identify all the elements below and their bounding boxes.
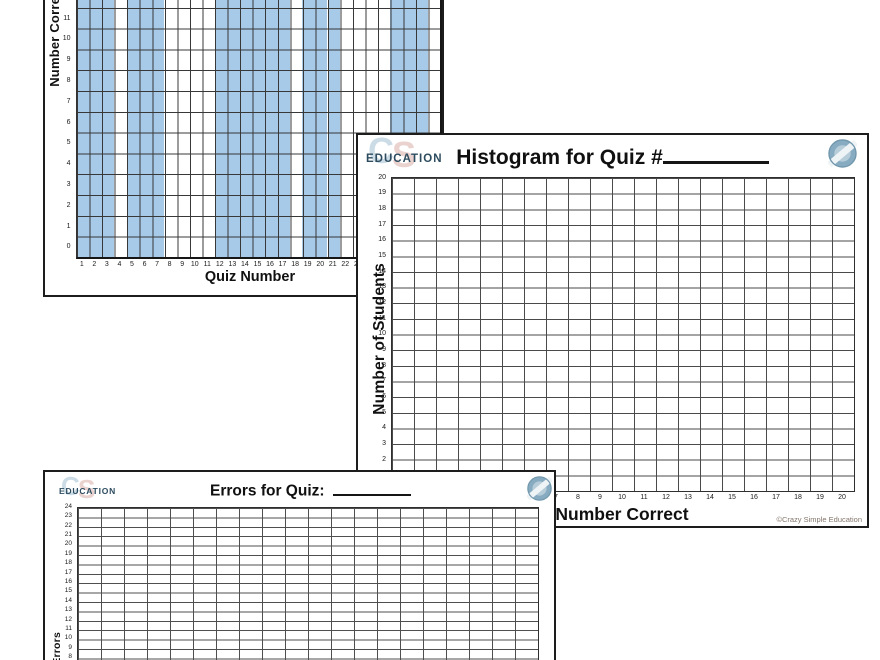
histogram-title: Histogram for Quiz # [358, 141, 867, 170]
shaded-column [277, 0, 290, 257]
shaded-column [315, 0, 328, 257]
y-tick-label: 8 [56, 654, 72, 660]
y-tick-label: 6 [55, 119, 71, 126]
grid-lines [78, 508, 538, 660]
logo-word: EDUCATION [59, 486, 116, 496]
x-tick-label: 15 [722, 494, 742, 501]
y-tick-label: 8 [370, 362, 386, 369]
x-tick-label: 13 [678, 494, 698, 501]
y-tick-label: 20 [370, 174, 386, 181]
y-tick-label: 14 [370, 268, 386, 275]
tracker-y-axis-title: Number Correct [47, 0, 62, 87]
y-tick-label: 15 [370, 252, 386, 259]
shaded-column [77, 0, 90, 257]
y-tick-label: 9 [370, 346, 386, 353]
x-tick-label: 18 [788, 494, 808, 501]
y-tick-label: 13 [370, 283, 386, 290]
shaded-column [252, 0, 265, 257]
x-tick-label: 20 [832, 494, 852, 501]
y-tick-label: 1 [55, 223, 71, 230]
errors-page: C S EDUCATION Errors for Quiz: Number of… [43, 470, 556, 660]
y-tick-label: 10 [56, 635, 72, 642]
tracker-x-axis-title: Quiz Number [100, 269, 400, 285]
y-tick-label: 9 [55, 56, 71, 63]
x-tick-label: 9 [590, 494, 610, 501]
cs-education-logo-small: C S EDUCATION [59, 474, 129, 504]
shaded-column [240, 0, 253, 257]
y-tick-label: 20 [56, 541, 72, 548]
y-tick-label: 3 [55, 181, 71, 188]
shaded-column [89, 0, 102, 257]
worksheet-preview: Number Correct Quiz Number 1110987654321… [0, 0, 880, 660]
shaded-column [215, 0, 228, 257]
y-tick-label: 4 [370, 424, 386, 431]
y-tick-label: 24 [56, 504, 72, 511]
histogram-title-text: Histogram for Quiz # [456, 146, 663, 169]
errors-title-text: Errors for Quiz: [210, 483, 325, 500]
y-tick-label: 10 [370, 330, 386, 337]
shaded-column [227, 0, 240, 257]
quiz-number-blank-line [663, 141, 769, 164]
y-tick-label: 22 [56, 523, 72, 530]
errors-title: Errors for Quiz: [210, 479, 411, 501]
x-tick-label: 17 [766, 494, 786, 501]
y-tick-label: 2 [55, 202, 71, 209]
grid-lines [392, 178, 854, 491]
y-tick-label: 17 [370, 221, 386, 228]
shaded-column [102, 0, 115, 257]
brand-stamp-icon [828, 139, 857, 168]
y-tick-label: 11 [55, 15, 71, 22]
shaded-column [328, 0, 341, 257]
y-tick-label: 3 [370, 440, 386, 447]
y-tick-label: 15 [56, 588, 72, 595]
y-tick-label: 19 [370, 189, 386, 196]
y-tick-label: 21 [56, 532, 72, 539]
x-tick-label: 8 [568, 494, 588, 501]
errors-grid [77, 507, 539, 660]
y-tick-label: 11 [370, 315, 386, 322]
y-tick-label: 7 [370, 377, 386, 384]
y-tick-label: 17 [56, 570, 72, 577]
x-tick-label: 10 [612, 494, 632, 501]
y-tick-label: 6 [370, 393, 386, 400]
y-tick-label: 4 [55, 160, 71, 167]
y-tick-label: 5 [370, 409, 386, 416]
x-tick-label: 16 [744, 494, 764, 501]
y-tick-label: 16 [370, 236, 386, 243]
y-tick-label: 14 [56, 598, 72, 605]
y-tick-label: 7 [55, 98, 71, 105]
shaded-column [139, 0, 152, 257]
y-tick-label: 12 [56, 617, 72, 624]
x-tick-label: 11 [634, 494, 654, 501]
y-tick-label: 5 [55, 139, 71, 146]
y-tick-label: 18 [370, 205, 386, 212]
shaded-column [302, 0, 315, 257]
histogram-grid [391, 177, 855, 492]
shaded-column [152, 0, 165, 257]
y-tick-label: 2 [370, 456, 386, 463]
y-tick-label: 11 [56, 626, 72, 633]
y-tick-label: 18 [56, 560, 72, 567]
histogram-page: C S EDUCATION Histogram for Quiz # Numbe… [356, 133, 869, 528]
y-tick-label: 9 [56, 645, 72, 652]
quiz-number-blank-line [333, 479, 411, 496]
y-tick-label: 12 [370, 299, 386, 306]
x-tick-label: 14 [700, 494, 720, 501]
y-tick-label: 16 [56, 579, 72, 586]
shaded-column [265, 0, 278, 257]
y-tick-label: 19 [56, 551, 72, 558]
shaded-column [127, 0, 140, 257]
y-tick-label: 10 [55, 35, 71, 42]
brand-stamp-icon [527, 476, 552, 501]
copyright-text: ©Crazy Simple Education [776, 515, 862, 524]
x-tick-label: 19 [810, 494, 830, 501]
y-tick-label: 0 [55, 243, 71, 250]
y-tick-label: 13 [56, 607, 72, 614]
y-tick-label: 8 [55, 77, 71, 84]
x-tick-label: 12 [656, 494, 676, 501]
y-tick-label: 23 [56, 513, 72, 520]
